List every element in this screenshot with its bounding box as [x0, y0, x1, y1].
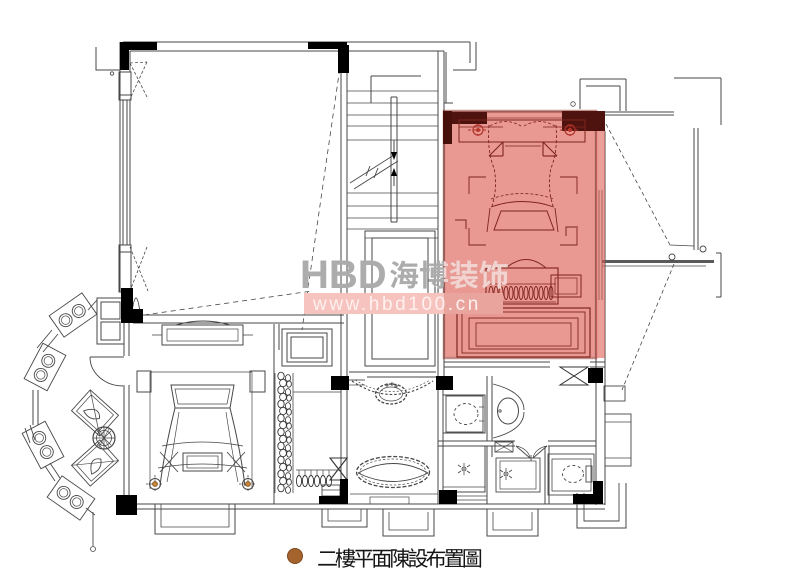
svg-text:HBD: HBD: [300, 253, 387, 297]
svg-text:www.hbd100.cn: www.hbd100.cn: [312, 294, 481, 315]
